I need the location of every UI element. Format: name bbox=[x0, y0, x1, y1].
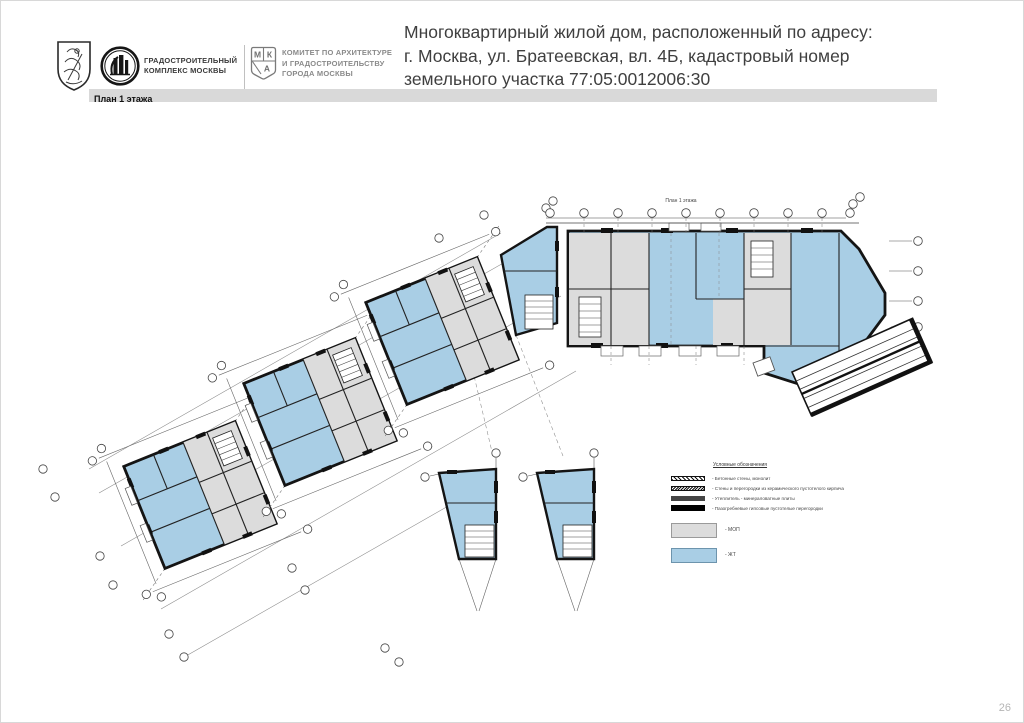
legend-title: Условные обозначения bbox=[713, 462, 861, 468]
legend-item-brick: - Стены и перегородки из керамического п… bbox=[671, 483, 861, 493]
legend-item-insulation: - Утеплитель - минераловатные плиты bbox=[671, 493, 861, 503]
insulation-swatch bbox=[671, 496, 705, 501]
page-number: 26 bbox=[999, 702, 1011, 714]
legend-item-partition: - Пазогребневые гипсовые пустотелые пере… bbox=[671, 503, 861, 513]
common-area-swatch bbox=[671, 523, 717, 538]
partition-swatch bbox=[671, 505, 705, 511]
slide-page: ГРАДОСТРОИТЕЛЬНЫЙ КОМПЛЕКС МОСКВЫ М К А … bbox=[0, 0, 1024, 723]
legend-item-concrete: - Бетонные стены, монолит bbox=[671, 473, 861, 483]
legend: Условные обозначения - Бетонные стены, м… bbox=[671, 462, 861, 563]
legend-item-apartments: - ЖТ bbox=[671, 547, 861, 563]
triangle-section bbox=[501, 227, 559, 335]
legend-item-mop: - МОП bbox=[671, 522, 861, 538]
concrete-wall-swatch bbox=[671, 476, 705, 481]
wedge-section-2 bbox=[519, 449, 598, 611]
apartment-area-swatch bbox=[671, 548, 717, 563]
drawing-caption: План 1 этажа bbox=[646, 198, 716, 204]
wedge-section-1 bbox=[421, 449, 500, 611]
floor-plan-drawing bbox=[1, 1, 1024, 723]
brick-wall-swatch bbox=[671, 486, 705, 491]
